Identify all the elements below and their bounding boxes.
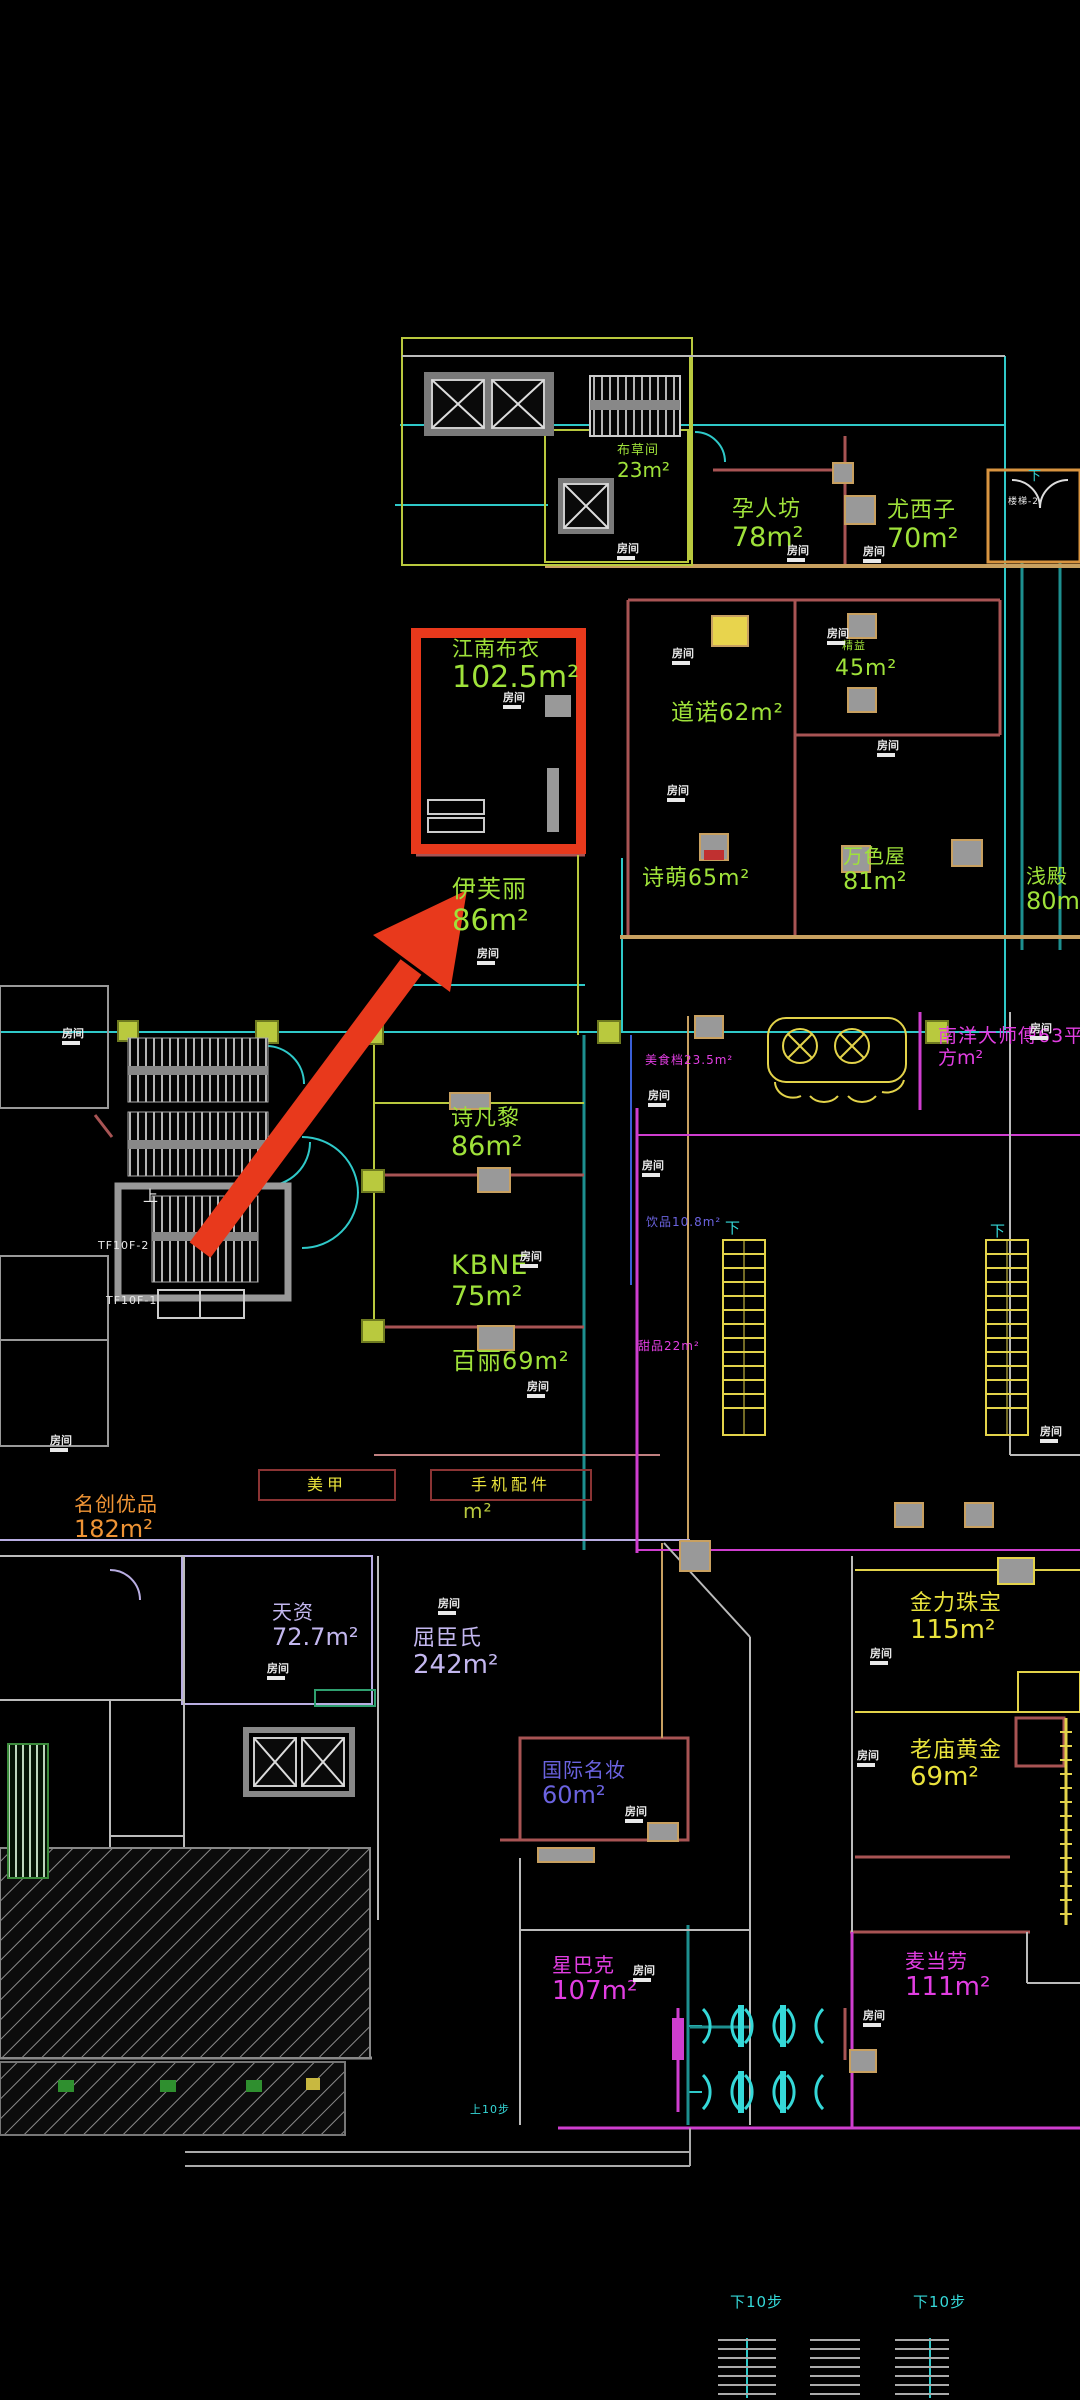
shop-name: 下10步	[730, 2294, 783, 2311]
room-tag: 房间	[477, 948, 499, 965]
shop-area: 方m²	[938, 1048, 1080, 1070]
shop-label-dn: 道诺62m²	[671, 700, 784, 726]
shop-name: 星巴克	[552, 1954, 637, 1977]
shop-label-tp: 甜品22m²	[638, 1340, 700, 1354]
shop-name: 手机配件	[471, 1476, 551, 1494]
shop-area: 69m²	[910, 1763, 1002, 1793]
shop-name: 下	[990, 1223, 1006, 1240]
shop-label-lmhj: 老庙黄金69m²	[910, 1738, 1002, 1793]
shop-label-sm: 诗萌65m²	[642, 866, 750, 891]
shop-label-r45: 45m²	[835, 656, 897, 681]
shop-label-down1: 下	[725, 1220, 741, 1237]
room-tag: 房间	[633, 1965, 655, 1982]
shop-name: 江南布衣	[452, 637, 579, 661]
shop-label-qcs: 屈臣氏242m²	[413, 1626, 498, 1681]
shop-name: 美食档23.5m²	[645, 1054, 733, 1068]
shop-label-mdl: 麦当劳111m²	[905, 1950, 990, 2003]
shop-label-down2: 下	[990, 1223, 1006, 1240]
shop-label-down0: 下	[1028, 470, 1042, 485]
shop-label-x10a: 下10步	[730, 2294, 783, 2311]
shop-label-eifini: 伊芙丽86m²	[452, 876, 529, 937]
shop-name: 下	[725, 1220, 741, 1237]
shop-name: 天资	[272, 1601, 358, 1624]
room-tag: 房间	[857, 1750, 879, 1767]
shop-area: 111m²	[905, 1973, 990, 2003]
shop-name: 麦当劳	[905, 1950, 990, 1973]
shop-name: 国际名妆	[542, 1759, 626, 1782]
shop-name: 楼梯-2	[1008, 497, 1039, 507]
shop-label-yxz: 尤西子70m²	[887, 498, 958, 554]
room-tag: 房间	[527, 1381, 549, 1398]
shop-name: 45m²	[835, 656, 897, 681]
shop-area: 72.7m²	[272, 1624, 358, 1652]
shop-label-lt2: 楼梯-2	[1008, 497, 1039, 507]
shop-area: 182m²	[74, 1516, 158, 1544]
shop-name: 道诺62m²	[671, 700, 784, 726]
shop-label-jnby: 江南布衣102.5m²	[452, 637, 579, 696]
shop-name: 下10步	[913, 2294, 966, 2311]
shop-label-x10b: 下10步	[913, 2294, 966, 2311]
room-tag: 房间	[438, 1598, 460, 1615]
shop-label-s10: 上10步	[470, 2104, 510, 2117]
shop-label-m2: m²	[463, 1500, 493, 1523]
room-tag: 房间	[648, 1090, 670, 1107]
shop-area: 75m²	[451, 1281, 529, 1312]
room-tag: 房间	[267, 1663, 289, 1680]
shop-area: 107m²	[552, 1977, 637, 2007]
shop-name: 万色屋	[843, 845, 907, 868]
room-tag: 房间	[672, 648, 694, 665]
shop-name: 美甲	[307, 1476, 347, 1494]
shop-area: 81m²	[843, 868, 907, 896]
shop-name: 金力珠宝	[910, 1591, 1002, 1616]
room-tag: 房间	[50, 1435, 72, 1452]
shop-label-bl: 百丽69m²	[452, 1348, 570, 1376]
shop-label-wsw: 万色屋81m²	[843, 845, 907, 896]
shop-name: 南洋大师傅63平	[938, 1026, 1080, 1048]
shop-label-mj: 美甲	[258, 1469, 396, 1501]
shop-name: 上10步	[470, 2104, 510, 2117]
shop-label-mcyp: 名创优品182m²	[74, 1493, 158, 1544]
room-tag: 房间	[62, 1028, 84, 1045]
shop-name: 老庙黄金	[910, 1738, 1002, 1763]
shop-name: 浅殿	[1026, 865, 1080, 888]
shop-name: 布草间	[617, 444, 670, 459]
shop-name: 下	[1028, 470, 1042, 485]
room-tag: 房间	[1030, 1023, 1052, 1040]
shop-name: 百丽69m²	[452, 1348, 570, 1376]
shop-name: TF10F-2	[98, 1240, 149, 1253]
room-tag: 房间	[617, 543, 639, 560]
shop-area: 80m²	[1026, 888, 1080, 916]
shop-label-msd: 美食档23.5m²	[645, 1054, 733, 1068]
room-tag: 房间	[863, 546, 885, 563]
shop-name: 饮品10.8m²	[646, 1216, 721, 1230]
room-tag: 房间	[625, 1806, 647, 1823]
shop-area: 86m²	[451, 1131, 522, 1162]
room-tag: 房间	[877, 740, 899, 757]
shop-label-qd: 浅殿80m²	[1026, 865, 1080, 916]
room-tag: 房间	[1040, 1426, 1062, 1443]
shop-name: 甜品22m²	[638, 1340, 700, 1354]
shop-name: 名创优品	[74, 1493, 158, 1516]
shop-label-sfl: 诗凡黎86m²	[451, 1106, 522, 1162]
shop-label-tz: 天资72.7m²	[272, 1601, 358, 1652]
shop-label-nydsf: 南洋大师傅63平方m²	[938, 1026, 1080, 1070]
shop-label-gjmz: 国际名妆60m²	[542, 1759, 626, 1810]
room-tag: 房间	[520, 1251, 542, 1268]
shop-label-sbk: 星巴克107m²	[552, 1954, 637, 2007]
room-tag: 房间	[827, 628, 849, 645]
shop-area: 70m²	[887, 523, 958, 554]
shop-label-bcj: 布草间23m²	[617, 444, 670, 482]
shop-name: KBNE	[451, 1250, 529, 1281]
shop-name: 诗凡黎	[451, 1106, 522, 1131]
shop-name: 屈臣氏	[413, 1626, 498, 1651]
shop-area: 86m²	[452, 904, 529, 937]
shop-label-tf2: TF10F-2	[98, 1240, 149, 1253]
shop-label-kbne: KBNE75m²	[451, 1250, 529, 1312]
floorplan-canvas: 江南布衣102.5m²伊芙丽86m²孕人坊78m²尤西子70m²布草间23m²道…	[0, 0, 1080, 2400]
shop-label-sjpj: 手机配件	[430, 1469, 592, 1501]
shop-label-yp: 饮品10.8m²	[646, 1216, 721, 1230]
labels-layer: 江南布衣102.5m²伊芙丽86m²孕人坊78m²尤西子70m²布草间23m²道…	[0, 0, 1080, 2400]
shop-area: 242m²	[413, 1651, 498, 1681]
shop-name: TF10F-1	[106, 1295, 157, 1308]
shop-area: 23m²	[617, 459, 670, 482]
shop-label-tf1: TF10F-1	[106, 1295, 157, 1308]
shop-name: m²	[463, 1500, 493, 1523]
shop-name: 诗萌65m²	[642, 866, 750, 891]
room-tag: 房间	[863, 2010, 885, 2027]
shop-name: 孕人坊	[732, 497, 803, 522]
shop-name: 上	[143, 1188, 159, 1205]
room-tag: 房间	[503, 692, 525, 709]
room-tag: 房间	[870, 1648, 892, 1665]
room-tag: 房间	[642, 1160, 664, 1177]
room-tag: 房间	[787, 545, 809, 562]
room-tag: 房间	[667, 785, 689, 802]
shop-area: 115m²	[910, 1616, 1002, 1646]
shop-area: 60m²	[542, 1782, 626, 1810]
shop-label-up1: 上	[143, 1188, 159, 1205]
shop-name: 伊芙丽	[452, 876, 529, 904]
shop-label-jlzb: 金力珠宝115m²	[910, 1591, 1002, 1646]
shop-name: 尤西子	[887, 498, 958, 523]
